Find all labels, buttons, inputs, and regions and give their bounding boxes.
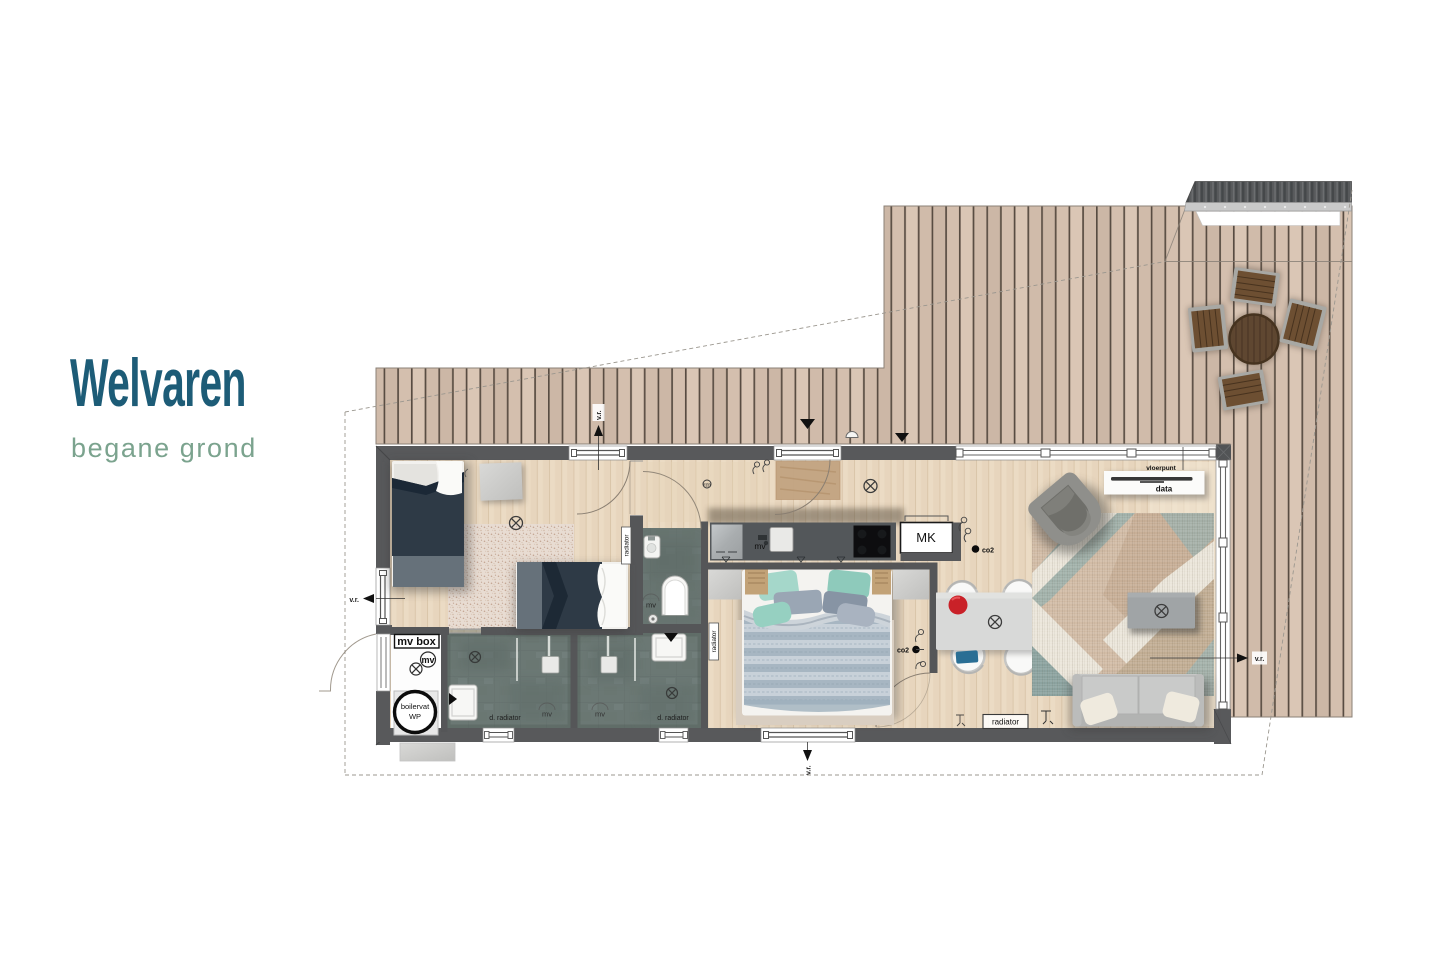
svg-text:mv: mv <box>754 541 766 551</box>
svg-text:co2: co2 <box>897 648 909 655</box>
svg-text:WP: WP <box>409 712 421 721</box>
svg-text:d. radiator: d. radiator <box>657 715 689 722</box>
svg-text:MK: MK <box>916 530 936 545</box>
svg-text:mv box: mv box <box>397 636 436 648</box>
svg-text:radiator: radiator <box>624 534 631 557</box>
svg-text:mv: mv <box>595 710 605 719</box>
svg-text:radiator: radiator <box>992 718 1019 727</box>
svg-text:boilervat: boilervat <box>401 702 430 711</box>
svg-text:v.r.: v.r. <box>806 765 813 775</box>
svg-text:rm: rm <box>703 482 711 489</box>
svg-text:d. radiator: d. radiator <box>489 715 521 722</box>
svg-text:vloerpunt: vloerpunt <box>1146 465 1176 472</box>
svg-text:v.r.: v.r. <box>349 597 359 604</box>
svg-text:mv: mv <box>421 655 434 665</box>
svg-text:radiator: radiator <box>711 630 718 653</box>
svg-text:v.r.: v.r. <box>1255 656 1265 663</box>
svg-text:mv: mv <box>542 710 552 719</box>
svg-text:co2: co2 <box>982 548 994 555</box>
svg-text:v.r.: v.r. <box>596 410 603 420</box>
svg-text:data: data <box>1156 485 1173 494</box>
svg-text:mv: mv <box>646 601 656 610</box>
